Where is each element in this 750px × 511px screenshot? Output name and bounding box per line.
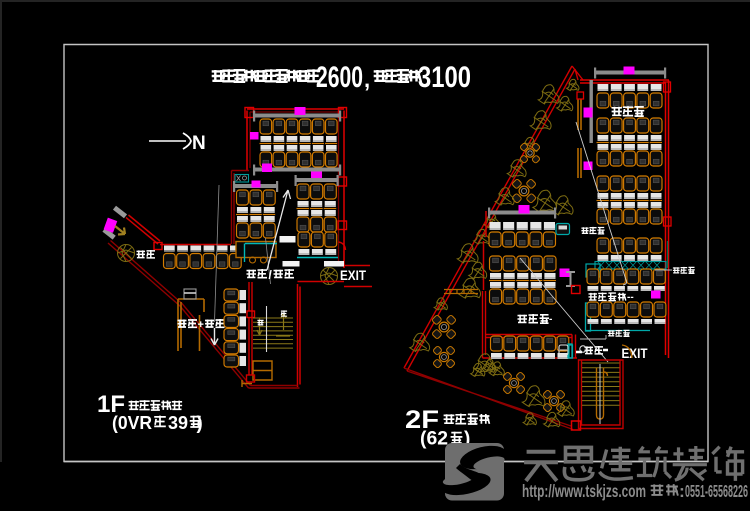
svg-text:): ) bbox=[197, 412, 203, 433]
svg-text:0551-65568226: 0551-65568226 bbox=[685, 481, 748, 501]
svg-text:39: 39 bbox=[168, 412, 188, 433]
svg-text:N: N bbox=[192, 133, 206, 154]
svg-text:,: , bbox=[364, 67, 370, 92]
svg-text:--: -- bbox=[627, 292, 634, 303]
svg-text:+: + bbox=[198, 319, 204, 331]
svg-text:EXIT: EXIT bbox=[622, 346, 649, 361]
svg-text::: : bbox=[679, 481, 685, 501]
svg-text:http://www.tskjzs.com: http://www.tskjzs.com bbox=[522, 481, 646, 501]
svg-text:(0VR: (0VR bbox=[112, 412, 152, 433]
svg-text:3100: 3100 bbox=[418, 61, 471, 94]
svg-text:-: - bbox=[549, 314, 552, 325]
svg-text:(62: (62 bbox=[420, 429, 448, 450]
svg-text:2600: 2600 bbox=[316, 61, 363, 94]
